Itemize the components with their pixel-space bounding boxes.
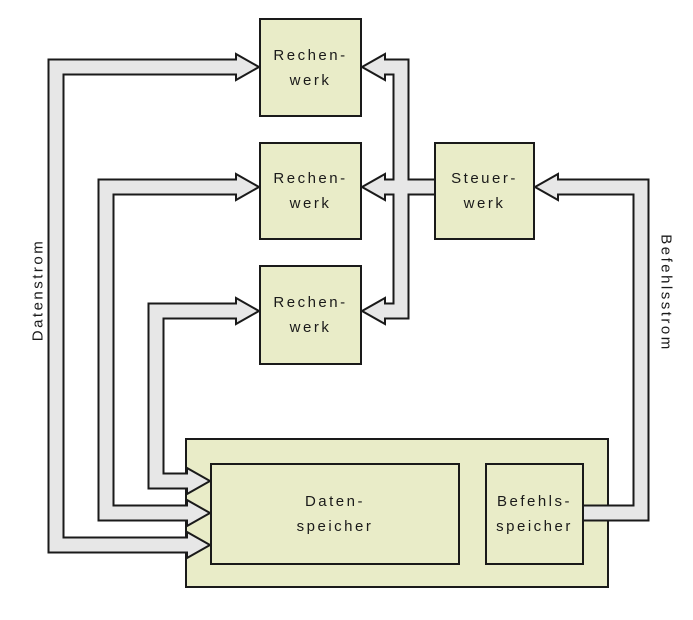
arrowhead-into-steuerwerk	[535, 174, 558, 200]
rechenwerk-2-box: Rechen- werk	[259, 142, 362, 240]
datenspeicher-label-line1: Daten-	[297, 489, 374, 514]
steuerwerk-label-line1: Steuer-	[451, 166, 518, 191]
rechenwerk-2-label-line1: Rechen-	[273, 166, 347, 191]
rechenwerk-2-label: Rechen- werk	[273, 166, 347, 216]
datenstrom-label: Datenstrom	[30, 239, 47, 342]
befehlsspeicher-label-line2: speicher	[496, 514, 573, 539]
arrowhead-into-rechenwerk-1-right	[362, 54, 385, 80]
rechenwerk-3-box: Rechen- werk	[259, 265, 362, 365]
datenspeicher-label-line2: speicher	[297, 514, 374, 539]
rechenwerk-1-label: Rechen- werk	[273, 43, 347, 93]
steuerwerk-label-line2: werk	[451, 191, 518, 216]
befehlsspeicher-box: Befehls- speicher	[485, 463, 584, 565]
arrowhead-into-rechenwerk-1-left	[236, 54, 259, 80]
arrowhead-into-rechenwerk-2-right	[362, 174, 385, 200]
rechenwerk-3-label-line2: werk	[273, 315, 347, 340]
pipe-steuerwerk-bus-fill	[380, 67, 401, 311]
arrowhead-into-rechenwerk-3-right	[362, 298, 385, 324]
befehlsspeicher-label: Befehls- speicher	[496, 489, 573, 539]
arrowhead-into-rechenwerk-3-left	[236, 298, 259, 324]
rechenwerk-1-label-line1: Rechen-	[273, 43, 347, 68]
rechenwerk-1-label-line2: werk	[273, 68, 347, 93]
rechenwerk-3-label-line1: Rechen-	[273, 290, 347, 315]
steuerwerk-box: Steuer- werk	[434, 142, 535, 240]
befehlsstrom-label: Befehlsstrom	[658, 234, 675, 352]
diagram-canvas: Daten- speicher Befehls- speicher Rechen…	[0, 0, 693, 620]
datenspeicher-label: Daten- speicher	[297, 489, 374, 539]
rechenwerk-3-label: Rechen- werk	[273, 290, 347, 340]
steuerwerk-label: Steuer- werk	[451, 166, 518, 216]
befehlsspeicher-label-line1: Befehls-	[496, 489, 573, 514]
arrowhead-into-rechenwerk-2-left	[236, 174, 259, 200]
pipe-steuerwerk-bus-outline	[380, 67, 401, 311]
rechenwerk-2-label-line2: werk	[273, 191, 347, 216]
rechenwerk-1-box: Rechen- werk	[259, 18, 362, 117]
datenspeicher-box: Daten- speicher	[210, 463, 460, 565]
